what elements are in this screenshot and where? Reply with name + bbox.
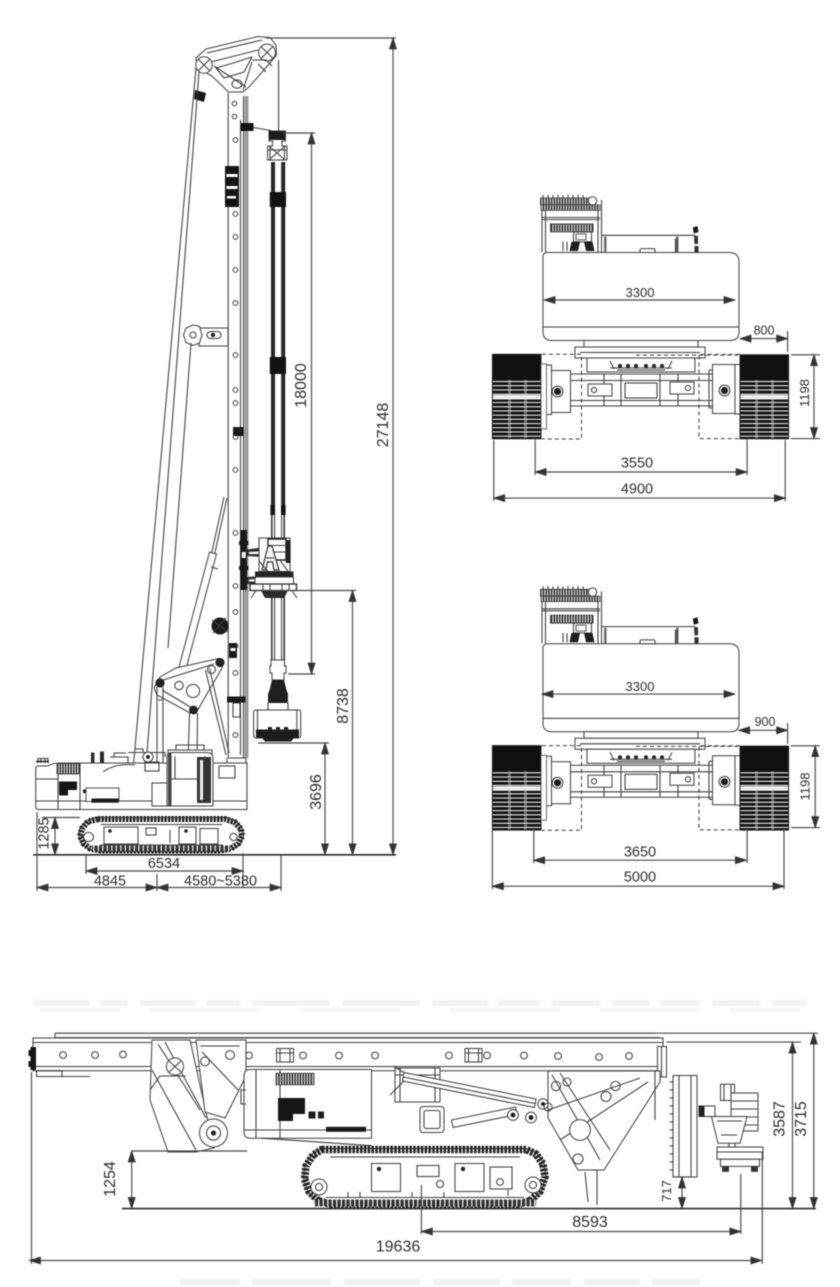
svg-text:3650: 3650: [624, 845, 656, 861]
svg-text:8738: 8738: [335, 688, 352, 724]
svg-text:3300: 3300: [626, 285, 655, 300]
svg-text:6534: 6534: [148, 856, 180, 872]
svg-text:3550: 3550: [621, 456, 653, 472]
svg-text:1198: 1198: [797, 379, 812, 407]
svg-text:19636: 19636: [376, 1239, 421, 1256]
svg-text:900: 900: [755, 715, 776, 729]
svg-text:4900: 4900: [621, 482, 653, 498]
svg-text:5000: 5000: [624, 870, 656, 886]
svg-text:27148: 27148: [375, 403, 392, 448]
svg-text:800: 800: [754, 324, 775, 338]
svg-text:3587: 3587: [772, 1101, 789, 1137]
svg-text:1285: 1285: [37, 817, 53, 849]
svg-text:1254: 1254: [102, 1161, 119, 1197]
svg-text:3715: 3715: [793, 1101, 810, 1137]
svg-text:8593: 8593: [572, 1214, 608, 1231]
svg-text:3696: 3696: [308, 774, 325, 810]
svg-text:4845: 4845: [94, 874, 126, 890]
svg-text:4580~5380: 4580~5380: [184, 874, 257, 890]
svg-text:3300: 3300: [626, 679, 655, 694]
svg-text:1198: 1198: [798, 773, 813, 801]
svg-text:18000: 18000: [293, 363, 310, 408]
svg-text:717: 717: [659, 1180, 674, 1202]
